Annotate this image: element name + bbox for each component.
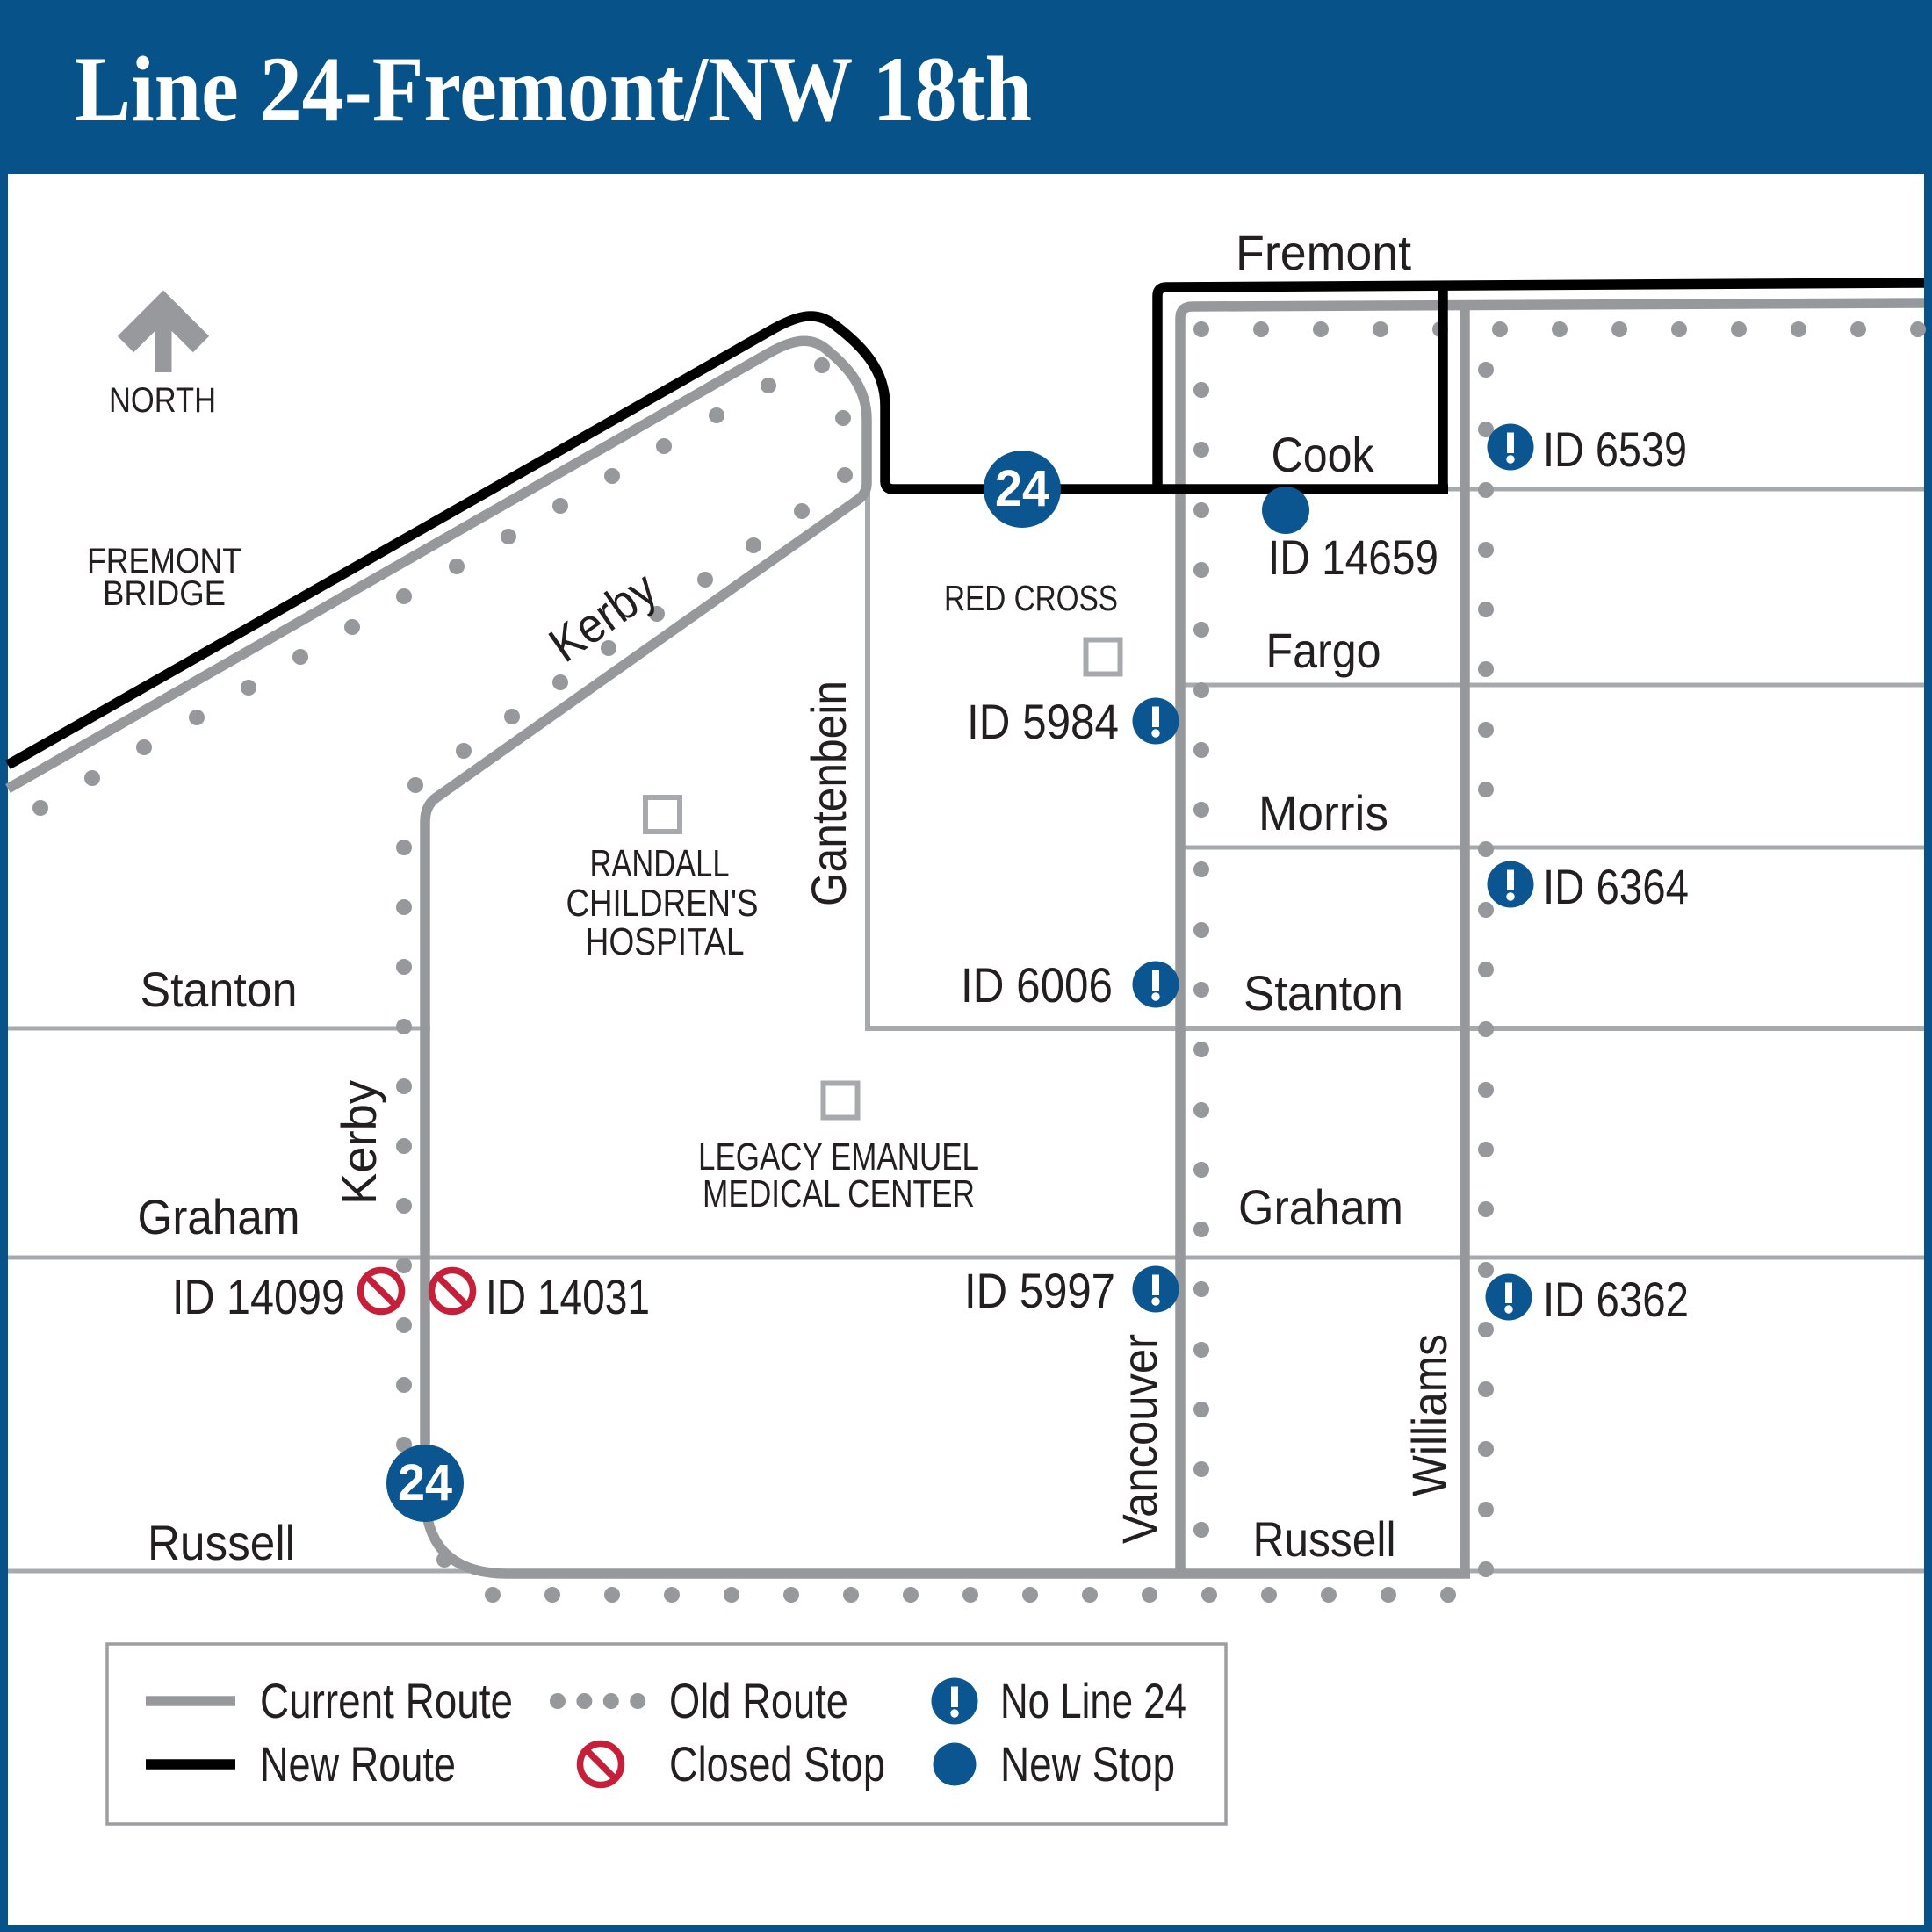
svg-text:ID 6362: ID 6362	[1543, 1272, 1689, 1327]
svg-text:Stanton: Stanton	[1244, 965, 1403, 1020]
svg-text:Graham: Graham	[138, 1189, 300, 1244]
svg-text:ID 5997: ID 5997	[964, 1263, 1115, 1318]
svg-text:ID 14659: ID 14659	[1268, 530, 1438, 585]
svg-text:ID 6539: ID 6539	[1543, 422, 1687, 477]
svg-text:RANDALL: RANDALL	[590, 842, 730, 885]
svg-text:Current Route: Current Route	[260, 1673, 513, 1728]
svg-text:Vancouver: Vancouver	[1112, 1334, 1167, 1544]
svg-text:Russell: Russell	[1253, 1511, 1396, 1567]
svg-text:NORTH: NORTH	[109, 381, 216, 420]
svg-text:ID 14031: ID 14031	[486, 1269, 650, 1324]
svg-text:24: 24	[995, 460, 1049, 517]
svg-text:CHILDREN'S: CHILDREN'S	[566, 882, 759, 925]
svg-text:No Line 24: No Line 24	[1000, 1673, 1186, 1728]
svg-text:ID 14099: ID 14099	[172, 1269, 345, 1324]
svg-text:Old Route: Old Route	[669, 1673, 848, 1728]
svg-text:ID 6006: ID 6006	[961, 957, 1113, 1013]
svg-text:BRIDGE: BRIDGE	[103, 574, 226, 613]
svg-text:New Route: New Route	[260, 1736, 456, 1791]
svg-text:Closed Stop: Closed Stop	[669, 1736, 885, 1791]
svg-text:MEDICAL CENTER: MEDICAL CENTER	[703, 1172, 975, 1215]
svg-text:Kerby: Kerby	[331, 1080, 386, 1205]
svg-text:Graham: Graham	[1238, 1179, 1403, 1235]
svg-text:ID 5984: ID 5984	[967, 694, 1119, 749]
svg-text:Williams: Williams	[1402, 1334, 1457, 1496]
svg-text:Gantenbein: Gantenbein	[801, 681, 856, 906]
svg-text:HOSPITAL: HOSPITAL	[586, 920, 745, 963]
svg-text:Russell: Russell	[148, 1515, 295, 1570]
svg-text:Fargo: Fargo	[1266, 623, 1381, 678]
svg-text:RED CROSS: RED CROSS	[944, 578, 1118, 618]
svg-text:Fremont: Fremont	[1236, 225, 1411, 280]
svg-text:Morris: Morris	[1258, 785, 1388, 840]
svg-text:ID 6364: ID 6364	[1543, 859, 1689, 914]
svg-text:Stanton: Stanton	[141, 962, 298, 1017]
svg-text:New Stop: New Stop	[1000, 1736, 1175, 1791]
svg-text:Cook: Cook	[1272, 427, 1375, 482]
svg-text:Line 24-Fremont/NW 18th: Line 24-Fremont/NW 18th	[75, 38, 1032, 141]
svg-text:24: 24	[398, 1454, 452, 1511]
